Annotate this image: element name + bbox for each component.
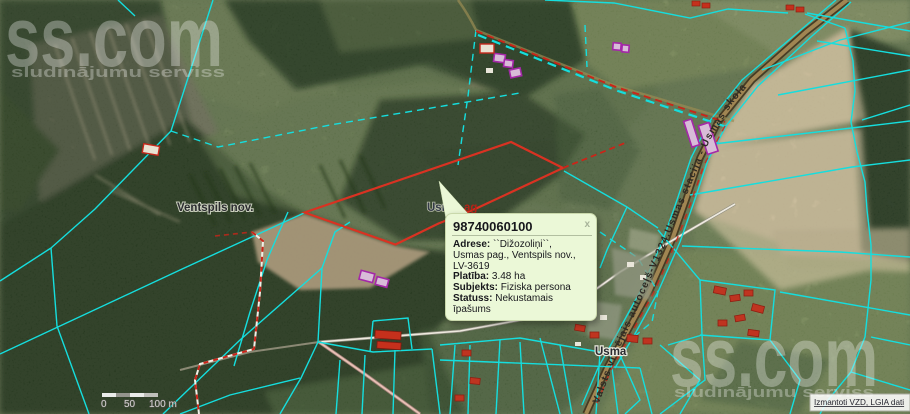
svg-text:Izmantoti VZD, LGIA dati: Izmantoti VZD, LGIA dati: [814, 398, 904, 407]
svg-text:Usma: Usma: [595, 346, 627, 358]
svg-text:100 m: 100 m: [149, 399, 177, 410]
svg-text:Ventspils nov.: Ventspils nov.: [177, 202, 253, 214]
svg-text:sludinājumu serviss: sludinājumu serviss: [11, 64, 225, 81]
svg-text:0: 0: [101, 399, 107, 410]
svg-text:50: 50: [124, 399, 136, 410]
